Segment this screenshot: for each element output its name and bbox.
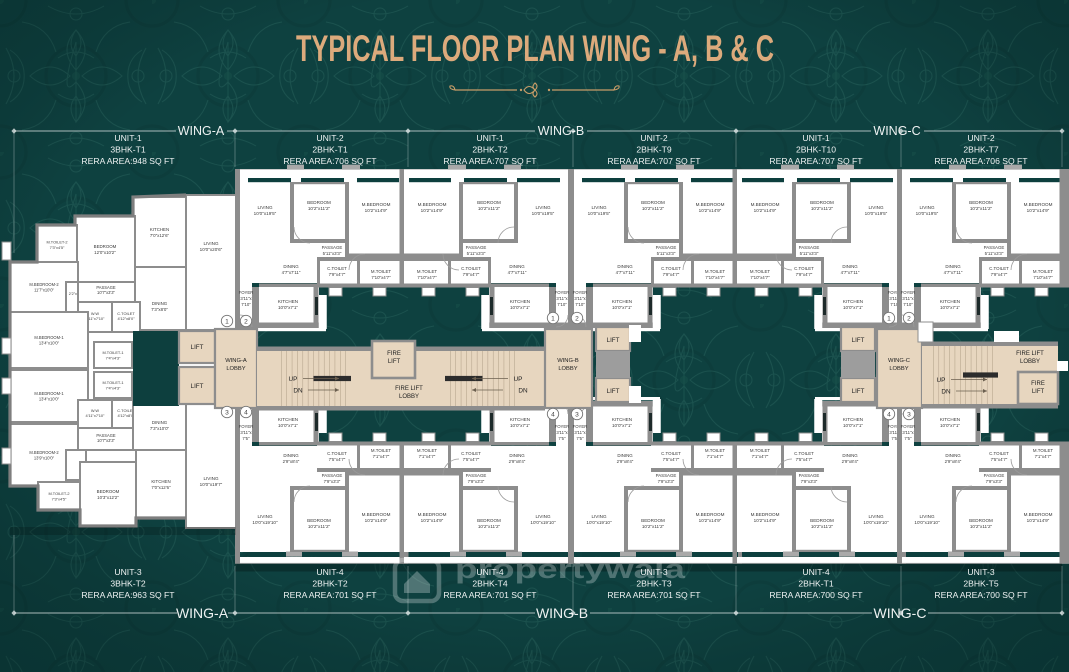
svg-text:UNIT-3: UNIT-3 <box>967 567 994 577</box>
svg-text:M.TOILET: M.TOILET <box>705 448 725 453</box>
svg-text:10'0"x19'5": 10'0"x19'5" <box>254 211 277 216</box>
svg-text:UP: UP <box>514 376 523 383</box>
svg-text:PASSAGE: PASSAGE <box>322 245 343 250</box>
svg-text:C.TOILET: C.TOILET <box>327 451 347 456</box>
svg-text:2BHK-T7: 2BHK-T7 <box>963 145 999 155</box>
svg-text:C.TOILET: C.TOILET <box>661 451 681 456</box>
svg-text:10'2"x14'9": 10'2"x14'9" <box>421 208 444 213</box>
svg-text:2BHK-T1: 2BHK-T1 <box>312 145 348 155</box>
svg-text:10'3"x12'2": 10'3"x12'2" <box>97 495 119 500</box>
svg-text:M.TOILET-2: M.TOILET-2 <box>46 240 67 245</box>
svg-text:7'9"x3'3": 7'9"x3'3" <box>658 479 675 484</box>
svg-text:M.TOILET-2: M.TOILET-2 <box>48 491 69 496</box>
svg-text:BEDROOM: BEDROOM <box>307 200 331 205</box>
svg-text:LIVING: LIVING <box>868 205 883 210</box>
svg-text:7'10"x4'7": 7'10"x4'7" <box>417 275 437 280</box>
svg-text:10'2"x11'2": 10'2"x11'2" <box>478 206 501 211</box>
svg-text:10'7"x3'3": 10'7"x3'3" <box>97 438 115 443</box>
svg-text:PASSAGE: PASSAGE <box>656 473 677 478</box>
svg-text:3: 3 <box>575 411 579 418</box>
svg-text:10'0"x7'1": 10'0"x7'1" <box>278 423 298 428</box>
svg-text:10'0"x7'1": 10'0"x7'1" <box>612 305 632 310</box>
svg-text:KITCHEN: KITCHEN <box>940 417 960 422</box>
svg-text:7'10": 7'10" <box>575 302 585 307</box>
svg-text:M.BEDROOM-2: M.BEDROOM-2 <box>29 282 59 287</box>
svg-text:7'10": 7'10" <box>557 302 567 307</box>
svg-text:7'9"x4'7": 7'9"x4'7" <box>991 272 1008 277</box>
svg-text:WING-C: WING-C <box>888 358 910 364</box>
svg-text:FIRE LIFT: FIRE LIFT <box>395 386 423 392</box>
svg-text:WING-B: WING-B <box>536 605 588 621</box>
svg-text:7'3"x8'0": 7'3"x8'0" <box>151 307 168 312</box>
svg-text:13'4"x10'0": 13'4"x10'0" <box>39 341 60 346</box>
svg-text:LIVING: LIVING <box>203 476 218 481</box>
svg-text:DINING: DINING <box>617 264 633 269</box>
svg-text:7'9"x3'3": 7'9"x3'3" <box>468 479 485 484</box>
svg-text:KITCHEN: KITCHEN <box>150 227 169 232</box>
svg-text:FIRE LIFT: FIRE LIFT <box>1016 351 1044 357</box>
svg-text:2BHK-T10: 2BHK-T10 <box>796 145 836 155</box>
svg-text:4: 4 <box>887 411 891 418</box>
svg-text:M.BEDROOM: M.BEDROOM <box>418 512 447 517</box>
svg-text:2'9"x8'4": 2'9"x8'4" <box>509 459 526 464</box>
svg-text:3'11"x: 3'11"x <box>240 430 252 435</box>
svg-text:7'9"x3'3": 7'9"x3'3" <box>986 479 1003 484</box>
svg-text:C.TOILET: C.TOILET <box>794 266 814 271</box>
svg-text:7'3"x4'5": 7'3"x4'5" <box>52 497 67 502</box>
svg-text:10'2"x14'9": 10'2"x14'9" <box>699 518 722 523</box>
svg-text:10'0"x19'5": 10'0"x19'5" <box>588 211 611 216</box>
svg-text:DINING: DINING <box>509 264 525 269</box>
svg-text:DINING: DINING <box>945 264 961 269</box>
svg-text:2: 2 <box>575 315 579 322</box>
svg-text:PASSAGE: PASSAGE <box>656 245 677 250</box>
svg-text:C.TOILET: C.TOILET <box>661 266 681 271</box>
svg-text:4'7"x7'11": 4'7"x7'11" <box>508 270 527 275</box>
svg-text:5'11"x3'3": 5'11"x3'3" <box>985 251 1004 256</box>
svg-text:4'7"x7'11": 4'7"x7'11" <box>616 270 635 275</box>
svg-text:C.TOILET: C.TOILET <box>461 266 481 271</box>
svg-text:BEDROOM: BEDROOM <box>969 518 993 523</box>
svg-text:KITCHEN: KITCHEN <box>278 299 298 304</box>
svg-text:13'4"x10'0": 13'4"x10'0" <box>39 397 60 402</box>
svg-text:10'0"x19'10": 10'0"x19'10" <box>914 520 940 525</box>
svg-text:13'9"x10'0": 13'9"x10'0" <box>34 456 55 461</box>
svg-text:FOYER: FOYER <box>901 424 916 429</box>
svg-text:C.TOILET: C.TOILET <box>989 266 1009 271</box>
svg-text:10'2"x14'9": 10'2"x14'9" <box>365 208 388 213</box>
svg-text:LIFT: LIFT <box>1032 389 1045 395</box>
svg-text:M.TOILET-1: M.TOILET-1 <box>102 380 123 385</box>
svg-text:LIFT: LIFT <box>388 359 401 365</box>
svg-text:7'5"x4'7": 7'5"x4'7" <box>796 457 813 462</box>
svg-text:KITCHEN: KITCHEN <box>940 299 960 304</box>
svg-text:7'10"x4'7": 7'10"x4'7" <box>1033 275 1053 280</box>
svg-text:7'1"x4'7": 7'1"x4'7" <box>419 454 436 459</box>
svg-text:DINING: DINING <box>617 453 633 458</box>
svg-text:11'7"x10'0": 11'7"x10'0" <box>34 288 54 293</box>
svg-text:10'2"x11'2": 10'2"x11'2" <box>811 524 834 529</box>
svg-text:10'2"x11'2": 10'2"x11'2" <box>970 524 993 529</box>
svg-text:4'12"x8'0": 4'12"x8'0" <box>117 316 135 321</box>
svg-text:10'2"x11'2": 10'2"x11'2" <box>308 524 331 529</box>
svg-text:UNIT-4: UNIT-4 <box>802 567 829 577</box>
svg-text:FOYER: FOYER <box>239 424 254 429</box>
svg-text:7'1"x4'7": 7'1"x4'7" <box>752 454 769 459</box>
svg-text:2: 2 <box>244 318 248 325</box>
svg-text:DINING: DINING <box>945 453 961 458</box>
svg-text:UNIT-2: UNIT-2 <box>316 133 343 143</box>
svg-text:LOBBY: LOBBY <box>558 366 577 372</box>
svg-text:M.TOILET: M.TOILET <box>417 269 437 274</box>
svg-text:10'0"x19'5": 10'0"x19'5" <box>532 211 555 216</box>
svg-text:BEDROOM: BEDROOM <box>810 200 834 205</box>
svg-text:UNIT-2: UNIT-2 <box>640 133 667 143</box>
svg-text:7'10"x4'7": 7'10"x4'7" <box>371 275 391 280</box>
svg-text:M.TOILET: M.TOILET <box>371 448 391 453</box>
svg-text:7'10"x4'7": 7'10"x4'7" <box>705 275 725 280</box>
svg-text:7'1"x4'7": 7'1"x4'7" <box>707 454 724 459</box>
svg-text:10'2"x11'2": 10'2"x11'2" <box>642 524 665 529</box>
svg-text:7'5": 7'5" <box>558 436 566 441</box>
svg-text:2: 2 <box>907 315 911 322</box>
svg-text:10'0"x19'5": 10'0"x19'5" <box>865 211 888 216</box>
svg-text:WING-A: WING-A <box>176 605 229 621</box>
svg-text:7'9"x3'3": 7'9"x3'3" <box>801 479 818 484</box>
svg-text:7'0"x12'6": 7'0"x12'6" <box>150 233 170 238</box>
svg-text:M.BEDROOM: M.BEDROOM <box>751 202 780 207</box>
svg-text:2'9"x8'4": 2'9"x8'4" <box>945 459 962 464</box>
svg-text:LIVING: LIVING <box>919 205 934 210</box>
svg-text:10'7"x3'3": 10'7"x3'3" <box>97 290 115 295</box>
svg-text:10'0"x7'1": 10'0"x7'1" <box>278 305 298 310</box>
svg-text:2BHK-T2: 2BHK-T2 <box>472 145 508 155</box>
svg-text:2BHK-T9: 2BHK-T9 <box>636 145 672 155</box>
svg-text:10'0"x7'1": 10'0"x7'1" <box>612 423 632 428</box>
svg-text:UNIT-2: UNIT-2 <box>967 133 994 143</box>
svg-text:7'1"x4'7": 7'1"x4'7" <box>1035 454 1052 459</box>
svg-text:5'11"x3'3": 5'11"x3'3" <box>323 251 342 256</box>
svg-text:WING-A: WING-A <box>178 124 225 138</box>
svg-text:2BHK-T1: 2BHK-T1 <box>798 579 834 589</box>
svg-text:BEDROOM: BEDROOM <box>641 518 665 523</box>
svg-text:10'0"x19'10": 10'0"x19'10" <box>530 520 556 525</box>
svg-text:propertywala: propertywala <box>455 554 686 584</box>
svg-text:10'2"x11'2": 10'2"x11'2" <box>308 206 331 211</box>
svg-text:FOYER: FOYER <box>901 290 916 295</box>
svg-text:M.BEDROOM-1: M.BEDROOM-1 <box>34 335 64 340</box>
svg-text:4'7"x7'11": 4'7"x7'11" <box>282 270 301 275</box>
svg-text:M.BEDROOM-2: M.BEDROOM-2 <box>29 450 59 455</box>
svg-text:M.TOILET: M.TOILET <box>417 448 437 453</box>
svg-text:7'5": 7'5" <box>904 436 912 441</box>
svg-text:LOBBY: LOBBY <box>889 366 908 372</box>
svg-text:10'0"x7'1": 10'0"x7'1" <box>940 305 960 310</box>
svg-text:BEDROOM: BEDROOM <box>97 489 120 494</box>
svg-text:10'0"x7'1": 10'0"x7'1" <box>510 305 530 310</box>
svg-text:KITCHEN: KITCHEN <box>843 417 863 422</box>
svg-text:M.TOILET: M.TOILET <box>1033 448 1053 453</box>
svg-text:PASSAGE: PASSAGE <box>984 245 1005 250</box>
svg-text:KITCHEN: KITCHEN <box>843 299 863 304</box>
svg-text:M.BEDROOM: M.BEDROOM <box>1024 202 1053 207</box>
svg-text:7'5"x4'7": 7'5"x4'7" <box>663 457 680 462</box>
svg-text:4: 4 <box>551 411 555 418</box>
svg-text:10'2"x11'2": 10'2"x11'2" <box>970 206 993 211</box>
svg-text:10'0"x19'7": 10'0"x19'7" <box>200 482 223 487</box>
svg-text:10'0"x19'10": 10'0"x19'10" <box>863 520 889 525</box>
svg-text:PASSAGE: PASSAGE <box>799 245 820 250</box>
svg-text:3BHK-T1: 3BHK-T1 <box>110 145 146 155</box>
svg-text:KITCHEN: KITCHEN <box>612 299 632 304</box>
svg-text:RERA AREA:701 SQ FT: RERA AREA:701 SQ FT <box>283 590 377 600</box>
svg-text:7'5"x4'7": 7'5"x4'7" <box>991 457 1008 462</box>
svg-text:10'2"x14'9": 10'2"x14'9" <box>365 518 388 523</box>
svg-text:C.TOILET: C.TOILET <box>327 266 347 271</box>
svg-text:3'11"x: 3'11"x <box>902 430 914 435</box>
svg-text:7'9"x4'7": 7'9"x4'7" <box>329 272 346 277</box>
svg-text:10'0"x19'10": 10'0"x19'10" <box>252 520 278 525</box>
svg-text:7'5": 7'5" <box>242 436 250 441</box>
svg-text:7'3"x10'0": 7'3"x10'0" <box>150 426 170 431</box>
svg-text:10'0"x7'1": 10'0"x7'1" <box>510 423 530 428</box>
svg-text:4'7"x7'11": 4'7"x7'11" <box>841 270 860 275</box>
svg-text:LIFT: LIFT <box>852 337 865 344</box>
svg-text:BEDROOM: BEDROOM <box>477 518 501 523</box>
svg-text:LOBBY: LOBBY <box>1020 359 1040 365</box>
svg-text:FOYER: FOYER <box>555 424 570 429</box>
svg-text:M.BEDROOM: M.BEDROOM <box>1024 512 1053 517</box>
svg-text:1: 1 <box>887 315 891 322</box>
svg-text:PASSAGE: PASSAGE <box>466 245 487 250</box>
svg-text:FOYER: FOYER <box>573 290 588 295</box>
svg-text:3'11"x: 3'11"x <box>902 296 914 301</box>
svg-text:7'10": 7'10" <box>903 302 913 307</box>
svg-text:FOYER: FOYER <box>239 290 254 295</box>
svg-text:12'0"x10'2": 12'0"x10'2" <box>94 250 116 255</box>
svg-text:BEDROOM: BEDROOM <box>641 200 665 205</box>
svg-text:WING-B: WING-B <box>557 358 579 364</box>
svg-text:5'11"x3'3": 5'11"x3'3" <box>657 251 676 256</box>
svg-text:10'0"x7'1": 10'0"x7'1" <box>843 305 863 310</box>
svg-text:BEDROOM: BEDROOM <box>477 200 501 205</box>
svg-text:M.BEDROOM: M.BEDROOM <box>362 202 391 207</box>
svg-text:10'0"x19'5": 10'0"x19'5" <box>916 211 939 216</box>
svg-text:DINING: DINING <box>283 453 299 458</box>
svg-text:10'2"x14'9": 10'2"x14'9" <box>1027 518 1050 523</box>
svg-text:M.TOILET: M.TOILET <box>1033 269 1053 274</box>
svg-text:DN: DN <box>293 388 303 395</box>
svg-text:3'11"x: 3'11"x <box>240 296 252 301</box>
svg-text:BEDROOM: BEDROOM <box>307 518 331 523</box>
svg-text:FOYER: FOYER <box>573 424 588 429</box>
svg-text:7'9"x3'3": 7'9"x3'3" <box>324 479 341 484</box>
svg-text:UP: UP <box>937 377 946 384</box>
svg-text:M.BEDROOM: M.BEDROOM <box>418 202 447 207</box>
svg-text:FIRE: FIRE <box>387 351 401 357</box>
svg-text:LIFT: LIFT <box>852 388 865 395</box>
svg-text:10'0"x7'1": 10'0"x7'1" <box>843 423 863 428</box>
svg-text:10'0"x20'6": 10'0"x20'6" <box>200 247 223 252</box>
svg-text:M.BEDROOM-1: M.BEDROOM-1 <box>34 391 64 396</box>
svg-text:BEDROOM: BEDROOM <box>969 200 993 205</box>
svg-text:LOBBY: LOBBY <box>399 394 419 400</box>
svg-text:2BHK-T2: 2BHK-T2 <box>312 579 348 589</box>
svg-text:M.TOILET: M.TOILET <box>371 269 391 274</box>
svg-text:DINING: DINING <box>152 301 168 306</box>
svg-text:LIVING: LIVING <box>591 205 606 210</box>
svg-text:M.BEDROOM: M.BEDROOM <box>362 512 391 517</box>
svg-text:RERA AREA:701 SQ FT: RERA AREA:701 SQ FT <box>607 590 701 600</box>
svg-text:7'9"x4'7": 7'9"x4'7" <box>796 272 813 277</box>
svg-text:RERA AREA:700 SQ FT: RERA AREA:700 SQ FT <box>934 590 1028 600</box>
svg-text:UNIT-3: UNIT-3 <box>114 567 141 577</box>
svg-text:PASSAGE: PASSAGE <box>984 473 1005 478</box>
svg-text:LIFT: LIFT <box>607 388 620 395</box>
svg-text:2'9"x8'4": 2'9"x8'4" <box>617 459 634 464</box>
svg-text:UNIT-1: UNIT-1 <box>114 133 141 143</box>
svg-text:KITCHEN: KITCHEN <box>510 417 530 422</box>
svg-text:7'4"x4'3": 7'4"x4'3" <box>106 386 121 391</box>
svg-text:10'2"x11'2": 10'2"x11'2" <box>478 524 501 529</box>
svg-text:7'10"x4'7": 7'10"x4'7" <box>750 275 770 280</box>
svg-text:4'7"x7'11": 4'7"x7'11" <box>944 270 963 275</box>
svg-text:M.TOILET: M.TOILET <box>750 269 770 274</box>
svg-text:10'2"x14'9": 10'2"x14'9" <box>421 518 444 523</box>
svg-text:RERA AREA:963 SQ FT: RERA AREA:963 SQ FT <box>81 590 175 600</box>
svg-text:BEDROOM: BEDROOM <box>810 518 834 523</box>
svg-text:10'2"x14'9": 10'2"x14'9" <box>754 208 777 213</box>
svg-text:DN: DN <box>941 389 951 396</box>
svg-text:BEDROOM: BEDROOM <box>94 244 117 249</box>
svg-text:DINING: DINING <box>283 264 299 269</box>
svg-text:WING-C: WING-C <box>873 124 920 138</box>
svg-text:LIVING: LIVING <box>535 205 550 210</box>
svg-text:KITCHEN: KITCHEN <box>278 417 298 422</box>
svg-text:10'2"x14'9": 10'2"x14'9" <box>1027 208 1050 213</box>
svg-text:DINING: DINING <box>842 453 858 458</box>
svg-text:7'3"x4'5": 7'3"x4'5" <box>50 245 65 250</box>
svg-text:1: 1 <box>551 315 555 322</box>
svg-text:3'11"x: 3'11"x <box>574 430 586 435</box>
svg-text:M.BEDROOM: M.BEDROOM <box>696 512 725 517</box>
svg-text:PASSAGE: PASSAGE <box>466 473 487 478</box>
svg-text:10'2"x11'2": 10'2"x11'2" <box>642 206 665 211</box>
svg-text:5'11"x3'3": 5'11"x3'3" <box>800 251 819 256</box>
svg-text:2BHK-T5: 2BHK-T5 <box>963 579 999 589</box>
svg-text:7'5": 7'5" <box>576 436 584 441</box>
svg-text:7'1"x4'7": 7'1"x4'7" <box>373 454 390 459</box>
svg-text:M.TOILET: M.TOILET <box>705 269 725 274</box>
svg-text:3'11"x: 3'11"x <box>556 296 568 301</box>
svg-text:7'4"x4'3": 7'4"x4'3" <box>106 356 121 361</box>
svg-text:UNIT-1: UNIT-1 <box>476 133 503 143</box>
svg-text:10'2"x14'9": 10'2"x14'9" <box>699 208 722 213</box>
svg-text:10'2"x11'2": 10'2"x11'2" <box>811 206 834 211</box>
svg-text:LIFT: LIFT <box>191 383 204 390</box>
svg-text:7'10": 7'10" <box>241 302 251 307</box>
svg-text:KITCHEN: KITCHEN <box>612 417 632 422</box>
svg-text:M.TOILET-1: M.TOILET-1 <box>102 350 123 355</box>
svg-text:C.TOILET: C.TOILET <box>989 451 1009 456</box>
svg-text:5'11"x3'3": 5'11"x3'3" <box>467 251 486 256</box>
svg-text:DINING: DINING <box>152 420 168 425</box>
svg-text:LIFT: LIFT <box>607 337 620 344</box>
svg-text:UP: UP <box>289 376 298 383</box>
svg-text:4'11"x7'10": 4'11"x7'10" <box>86 413 106 418</box>
svg-text:LIVING: LIVING <box>257 514 272 519</box>
svg-text:3: 3 <box>225 409 229 416</box>
svg-text:7'9"x4'7": 7'9"x4'7" <box>463 272 480 277</box>
svg-text:3BHK-T2: 3BHK-T2 <box>110 579 146 589</box>
svg-text:7'0"x12'6": 7'0"x12'6" <box>151 485 171 490</box>
svg-text:LIVING: LIVING <box>203 241 218 246</box>
svg-text:7'9"x4'7": 7'9"x4'7" <box>663 272 680 277</box>
svg-text:KITCHEN: KITCHEN <box>151 479 170 484</box>
svg-text:RERA AREA:701 SQ FT: RERA AREA:701 SQ FT <box>443 590 537 600</box>
svg-text:LIVING: LIVING <box>535 514 550 519</box>
svg-text:10'2"x14'9": 10'2"x14'9" <box>754 518 777 523</box>
svg-text:DINING: DINING <box>842 264 858 269</box>
svg-text:3'11"x: 3'11"x <box>556 430 568 435</box>
svg-text:3: 3 <box>907 411 911 418</box>
svg-text:7'5"x4'7": 7'5"x4'7" <box>329 457 346 462</box>
svg-text:TYPICAL FLOOR PLAN WING - A, B: TYPICAL FLOOR PLAN WING - A, B & C <box>296 28 774 69</box>
svg-text:LIVING: LIVING <box>591 514 606 519</box>
svg-text:LIVING: LIVING <box>919 514 934 519</box>
svg-text:M.BEDROOM: M.BEDROOM <box>751 512 780 517</box>
svg-text:7'5"x4'7": 7'5"x4'7" <box>463 457 480 462</box>
svg-text:LIVING: LIVING <box>868 514 883 519</box>
svg-text:RERA AREA:700 SQ FT: RERA AREA:700 SQ FT <box>769 590 863 600</box>
svg-text:C.TOILET: C.TOILET <box>794 451 814 456</box>
svg-text:M.BEDROOM: M.BEDROOM <box>696 202 725 207</box>
svg-text:WING-C: WING-C <box>874 605 927 621</box>
svg-text:RERA AREA:948 SQ FT: RERA AREA:948 SQ FT <box>81 156 175 166</box>
svg-text:3'11"x: 3'11"x <box>574 296 586 301</box>
svg-text:DN: DN <box>518 388 528 395</box>
svg-text:2'9"x8'4": 2'9"x8'4" <box>283 459 300 464</box>
svg-text:DINING: DINING <box>509 453 525 458</box>
svg-text:M.TOILET: M.TOILET <box>750 448 770 453</box>
svg-text:FIRE: FIRE <box>1031 381 1045 387</box>
svg-text:1: 1 <box>225 318 229 325</box>
svg-text:LIFT: LIFT <box>191 344 204 351</box>
svg-text:2'9"x8'4": 2'9"x8'4" <box>842 459 859 464</box>
svg-text:PASSAGE: PASSAGE <box>322 473 343 478</box>
svg-text:LOBBY: LOBBY <box>226 366 245 372</box>
svg-text:PASSAGE: PASSAGE <box>799 473 820 478</box>
svg-text:10'0"x7'1": 10'0"x7'1" <box>940 423 960 428</box>
svg-text:UNIT-4: UNIT-4 <box>316 567 343 577</box>
svg-text:KITCHEN: KITCHEN <box>510 299 530 304</box>
svg-text:FOYER: FOYER <box>555 290 570 295</box>
svg-text:UNIT-1: UNIT-1 <box>802 133 829 143</box>
svg-text:4: 4 <box>244 409 248 416</box>
svg-text:WING-A: WING-A <box>225 358 247 364</box>
svg-text:WING-B: WING-B <box>538 124 585 138</box>
svg-text:LIVING: LIVING <box>257 205 272 210</box>
svg-text:C.TOILET: C.TOILET <box>461 451 481 456</box>
svg-text:10'0"x19'10": 10'0"x19'10" <box>586 520 612 525</box>
